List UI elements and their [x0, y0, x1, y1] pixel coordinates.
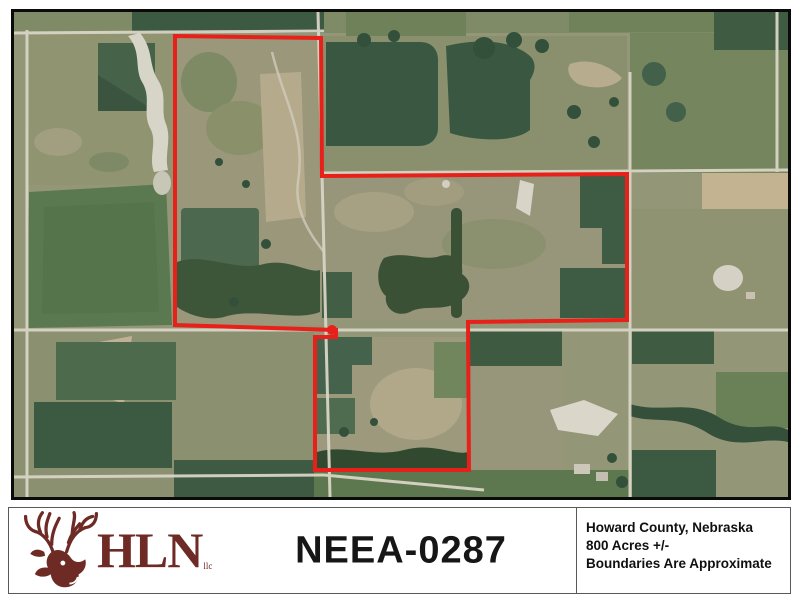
hln-logo: HLN llc — [15, 509, 212, 591]
detail-disclaimer: Boundaries Are Approximate — [586, 555, 786, 573]
boundary-vertex-dot — [327, 325, 337, 335]
logo-text: HLN llc — [97, 525, 212, 575]
map-frame — [11, 9, 791, 500]
logo-suffix: llc — [203, 562, 212, 571]
detail-acres: 800 Acres +/- — [586, 537, 786, 555]
detail-county: Howard County, Nebraska — [586, 519, 786, 537]
deer-buck-icon — [15, 509, 107, 591]
footer-divider — [576, 508, 577, 593]
logo-name: HLN — [97, 525, 202, 575]
aerial-photo — [14, 12, 788, 497]
listing-id: NEEA-0287 — [226, 529, 576, 572]
property-details: Howard County, Nebraska 800 Acres +/- Bo… — [586, 519, 786, 573]
footer-bar: HLN llc NEEA-0287 Howard County, Nebrask… — [8, 507, 791, 594]
